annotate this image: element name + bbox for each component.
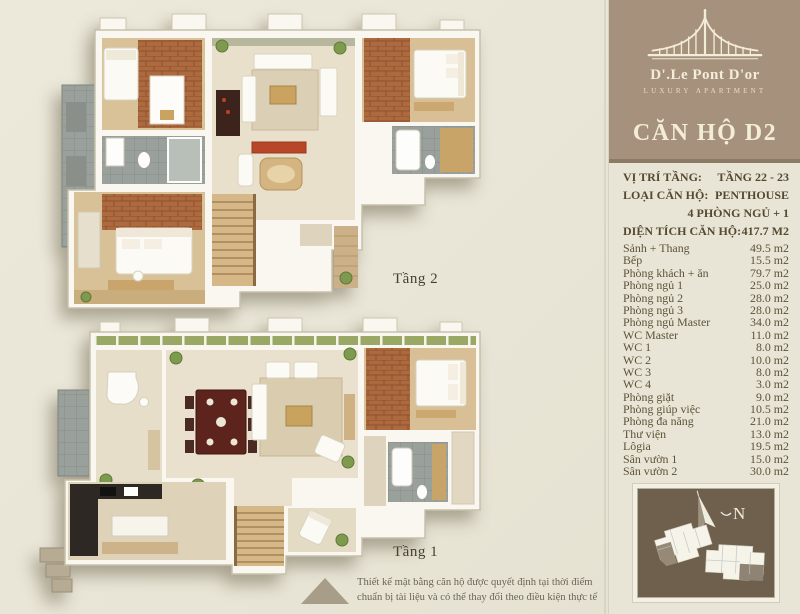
disclaimer-triangle-icon <box>301 578 349 604</box>
apartment-title: CĂN HỘ D2 <box>609 120 800 147</box>
room-area-list: Sảnh + Thang 49.5 m2 Bếp 15.5 m2 Phòng k… <box>623 242 789 477</box>
building-footprint-left <box>653 519 715 567</box>
tang-2-label: Tầng 2 <box>393 271 438 288</box>
room-name: WC 4 <box>623 378 651 390</box>
room-row: Sân vườn 2 30.0 m2 <box>623 465 789 477</box>
bridge-logo-icon <box>641 8 769 66</box>
info-value: TẦNG 22 - 23 <box>717 168 789 186</box>
room-area: 3.0 m2 <box>756 378 789 390</box>
disclaimer-line-1: Thiết kế mặt bằng căn hộ được quyết định… <box>357 575 612 590</box>
room-row: Lôgia 19.5 m2 <box>623 440 789 452</box>
tang-1-label: Tầng 1 <box>393 544 438 561</box>
room-area: 8.0 m2 <box>756 341 789 353</box>
room-name: Phòng đa năng <box>623 415 694 427</box>
north-label: N <box>733 504 745 523</box>
info-row: LOẠI CĂN HỘ: PENTHOUSE <box>623 186 789 204</box>
info-row: DIỆN TÍCH CĂN HỘ: 417.7 M2 <box>623 222 789 240</box>
room-name: Phòng ngủ Master <box>623 316 710 328</box>
room-name: WC 1 <box>623 341 651 353</box>
site-plan-panel: N <box>637 488 775 598</box>
room-area: 34.0 m2 <box>750 316 789 328</box>
brand-header: D'.Le Pont D'or LUXURY APARTMENT CĂN HỘ … <box>609 0 800 159</box>
site-plan-icon: N <box>637 488 775 598</box>
disclaimer-line-2: chuẩn bị tài liệu và có thể thay đổi the… <box>357 590 612 605</box>
room-row: WC 4 3.0 m2 <box>623 378 789 390</box>
room-area: 15.5 m2 <box>750 254 789 266</box>
divider <box>604 0 606 614</box>
sidebar: D'.Le Pont D'or LUXURY APARTMENT CĂN HỘ … <box>608 0 800 614</box>
room-name: Bếp <box>623 254 642 266</box>
room-area: 19.5 m2 <box>750 440 789 452</box>
floor-plan-tang-1 <box>28 310 498 606</box>
info-row: 4 PHÒNG NGỦ + 1 <box>623 204 789 222</box>
room-name: Phòng ngủ 1 <box>623 279 683 291</box>
info-value: 4 PHÒNG NGỦ + 1 <box>687 204 789 222</box>
info-value: PENTHOUSE <box>715 186 789 204</box>
brochure-page: Tầng 2 Tầng 1 Thiết kế mặt bằng căn hộ đ… <box>0 0 800 614</box>
brand-tagline: LUXURY APARTMENT <box>609 87 800 95</box>
room-area: 21.0 m2 <box>750 415 789 427</box>
site-plan-box: N <box>633 484 779 602</box>
info-label: VỊ TRÍ TẦNG: <box>623 168 702 186</box>
info-label: LOẠI CĂN HỘ: <box>623 186 708 204</box>
room-row: WC 1 8.0 m2 <box>623 341 789 353</box>
apartment-info: VỊ TRÍ TẦNG: TẦNG 22 - 23 LOẠI CĂN HỘ: P… <box>623 168 789 240</box>
info-label: DIỆN TÍCH CĂN HỘ: <box>623 222 741 240</box>
room-row: Phòng ngủ 1 25.0 m2 <box>623 279 789 291</box>
info-row: VỊ TRÍ TẦNG: TẦNG 22 - 23 <box>623 168 789 186</box>
brand-name: D'.Le Pont D'or <box>609 67 800 84</box>
info-value: 417.7 M2 <box>742 222 789 240</box>
room-name: Sân vườn 2 <box>623 465 677 477</box>
room-row: Phòng đa năng 21.0 m2 <box>623 415 789 427</box>
brand-divider <box>609 159 800 163</box>
room-row: Bếp 15.5 m2 <box>623 254 789 266</box>
building-footprint-right <box>705 544 765 581</box>
room-row: Phòng ngủ Master 34.0 m2 <box>623 316 789 328</box>
disclaimer-text: Thiết kế mặt bằng căn hộ được quyết định… <box>357 575 612 605</box>
room-area: 30.0 m2 <box>750 465 789 477</box>
room-area: 25.0 m2 <box>750 279 789 291</box>
room-name: Lôgia <box>623 440 651 452</box>
